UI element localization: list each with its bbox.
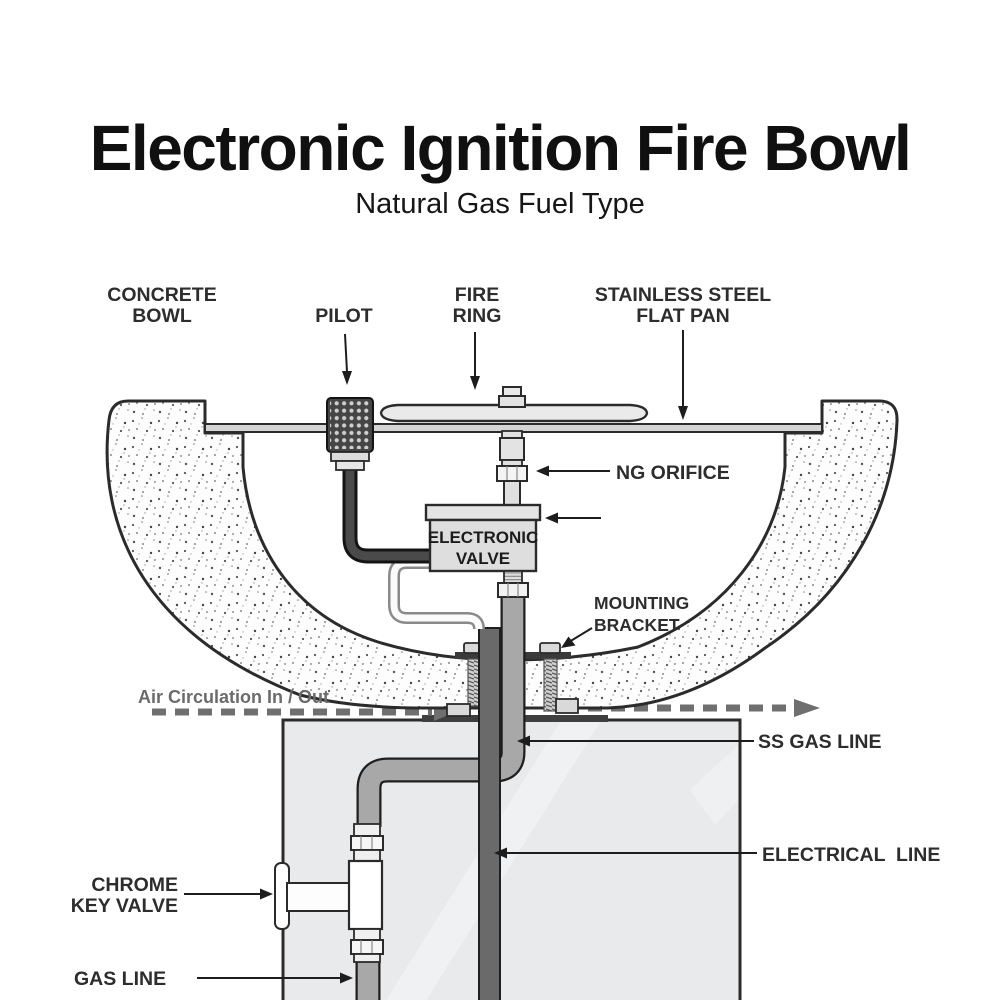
valve-lid <box>426 505 540 520</box>
ng-orifice-arrowhead <box>536 466 549 477</box>
key-valve-body <box>349 861 382 929</box>
pilot-tube <box>350 462 430 556</box>
pilot-arrowhead <box>342 371 352 385</box>
electrical-line-conduit <box>479 628 500 1000</box>
electronic-valve: ELECTRONIC VALVE <box>426 505 540 597</box>
label-mounting-bracket-line1: MOUNTING <box>594 593 689 613</box>
page-subtitle: Natural Gas Fuel Type <box>355 188 645 220</box>
label-chrome-key-valve-line1: CHROME <box>91 874 178 896</box>
label-ng-orifice: NG ORIFICE <box>616 462 730 484</box>
label-flat-pan-line2: FLAT PAN <box>636 305 730 327</box>
label-fire-ring-line2: RING <box>453 305 502 327</box>
diagram-canvas: Electronic Ignition Fire Bowl Natural Ga… <box>0 0 1000 1000</box>
label-flat-pan-line1: STAINLESS STEEL <box>595 284 771 306</box>
label-concrete-bowl-line1: CONCRETE <box>107 284 216 306</box>
bracket-foot-left <box>447 704 470 716</box>
fire-ring-arrowhead <box>470 376 480 390</box>
label-mounting-bracket-line2: BRACKET <box>594 615 680 635</box>
valve-label-line1: ELECTRONIC <box>428 528 539 547</box>
label-air-circulation: Air Circulation In / Out <box>138 687 329 707</box>
ignition-cable <box>394 563 479 629</box>
riser-and-ng-orifice <box>497 431 527 506</box>
valve-arrowhead <box>545 513 558 524</box>
key-valve-stem <box>287 883 350 911</box>
bracket-rod-right <box>544 659 557 711</box>
label-electrical-line: ELECTRICAL LINE <box>762 844 940 866</box>
label-ss-gas-line: SS GAS LINE <box>758 731 882 753</box>
valve-label-line2: VALVE <box>456 549 510 568</box>
fire-bowl-diagram-page: Electronic Ignition Fire Bowl Natural Ga… <box>0 0 1000 1000</box>
page-title: Electronic Ignition Fire Bowl <box>90 112 911 184</box>
pilot-burner <box>327 398 373 470</box>
label-fire-ring-line1: FIRE <box>455 284 499 306</box>
fire-ring-hub <box>499 387 525 407</box>
flat-pan-arrowhead <box>678 406 688 420</box>
label-pilot: PILOT <box>315 305 373 327</box>
bracket-bolt-right <box>540 643 560 653</box>
label-gas-line: GAS LINE <box>74 968 166 990</box>
label-chrome-key-valve-line2: KEY VALVE <box>71 895 178 917</box>
label-concrete-bowl-line2: BOWL <box>132 305 192 327</box>
air-arrow-right-head <box>794 699 820 717</box>
key-valve-arrowhead <box>260 889 273 900</box>
ng-orifice-nut <box>497 466 527 481</box>
bracket-foot-right <box>556 699 578 713</box>
